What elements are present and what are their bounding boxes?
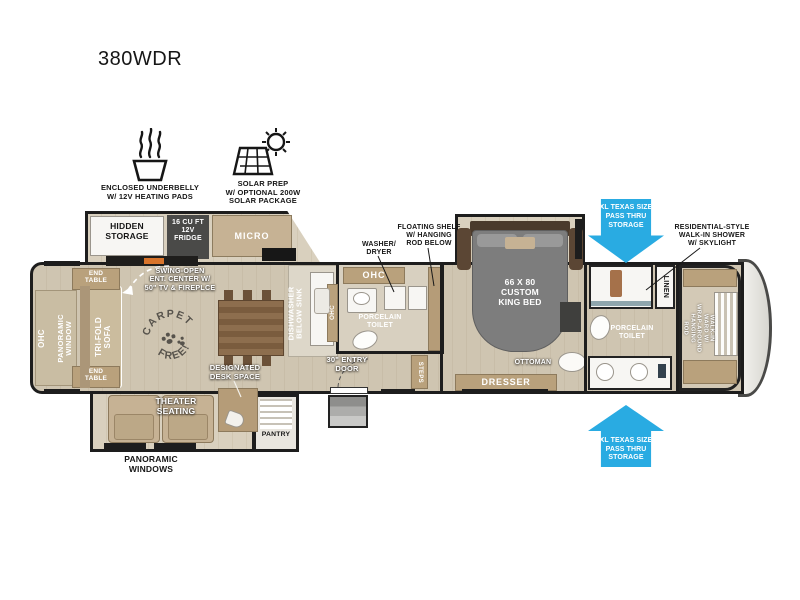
dining-chair — [262, 290, 271, 300]
bedroom-wall — [440, 265, 443, 391]
king-bed-label: 66 X 80 CUSTOM KING BED — [472, 278, 568, 307]
dryer — [408, 286, 427, 310]
fridge-label: 16 CU FT 12V FRIDGE — [167, 219, 209, 243]
panoramic-windows-label: PANORAMIC WINDOWS — [108, 455, 194, 475]
ottoman-label: OTTOMAN — [505, 359, 561, 367]
theater-seat-cushion — [168, 414, 208, 440]
slide-window — [154, 443, 196, 449]
swing-open-label: SWING-OPEN ENT. CENTER W/ 50" TV & FIREP… — [128, 267, 232, 292]
dining-table — [218, 300, 284, 356]
bedroom-window-bottom — [462, 389, 548, 394]
front-toilet-label: PORCELAIN TOILET — [600, 325, 664, 341]
pass-thru-bottom-label: XL TEXAS SIZE PASS THRU STORAGE — [600, 437, 653, 463]
bath-ohc-label: OHC — [343, 270, 405, 280]
pass-thru-arrow-up-icon: XL TEXAS SIZE PASS THRU STORAGE — [588, 405, 664, 467]
mid-toilet-label: PORCELAIN TOILET — [345, 314, 415, 330]
end-table-bottom-label: END TABLE — [72, 368, 120, 383]
pantry-label: PANTRY — [253, 431, 299, 439]
hall-window — [381, 389, 415, 394]
vanity-sink — [596, 363, 614, 381]
solar-panel-sun-icon — [232, 128, 294, 178]
ottoman — [558, 352, 586, 372]
pantry-shelves — [260, 399, 292, 429]
hidden-storage-label: HIDDEN STORAGE — [90, 222, 164, 242]
front-bath-wall — [584, 265, 587, 391]
page-title: 380WDR — [98, 48, 218, 71]
designated-desk-label: DESIGNATED DESK SPACE — [196, 364, 274, 381]
bed-accent-pillow — [505, 237, 535, 249]
cooktop — [262, 248, 296, 261]
rear-window-bottom — [44, 389, 80, 394]
entry-door-sill — [330, 387, 368, 394]
walkin-ward-label: WALK-IN WARD W/ WRAP-AROUND HANGING ROD — [672, 280, 724, 376]
shower-glass — [591, 301, 651, 306]
pass-thru-top-label: XL TEXAS SIZE PASS THRU STORAGE — [600, 204, 653, 230]
bedroom-window — [575, 219, 582, 259]
micro-label: MICRO — [212, 231, 292, 241]
entry-door-label: 30" ENTRY DOOR — [315, 356, 379, 373]
kitchen-ohc-label: OHC — [322, 290, 342, 336]
dishwasher-label: DISHWASHER BELOW SINK — [280, 268, 312, 358]
dresser-label: DRESSER — [455, 377, 557, 387]
vanity-fixture — [658, 364, 666, 378]
floorplan-page: 380WDR ENCLOSED UNDERBELLY W/ 12V HEATIN… — [0, 0, 800, 600]
entry-steps-exterior — [328, 395, 368, 428]
theater-seating-label: THEATER SEATING — [138, 397, 214, 417]
heating-waves-icon — [124, 128, 176, 184]
carpet-bottom-text: FREE! — [154, 339, 195, 366]
dining-chair — [243, 290, 252, 300]
rear-window-top — [44, 261, 80, 266]
floating-shelf-label: FLOATING SHELF W/ HANGING ROD BELOW — [392, 224, 466, 248]
steps-label: STEPS — [408, 356, 432, 388]
shower-seat — [610, 270, 622, 297]
washer — [384, 286, 406, 310]
theater-seat-cushion — [114, 414, 154, 440]
solar-label: SOLAR PREP W/ OPTIONAL 200W SOLAR PACKAG… — [198, 180, 328, 206]
bath-sink-basin — [353, 292, 370, 305]
end-table-top-label: END TABLE — [72, 270, 120, 285]
slide-window — [104, 443, 146, 449]
residential-shower-label: RESIDENTIAL-STYLE WALK-IN SHOWER W/ SKYL… — [653, 224, 771, 248]
svg-text:FREE!: FREE! — [154, 339, 195, 366]
fireplace-glow — [144, 258, 164, 264]
vanity-sink — [630, 363, 648, 381]
